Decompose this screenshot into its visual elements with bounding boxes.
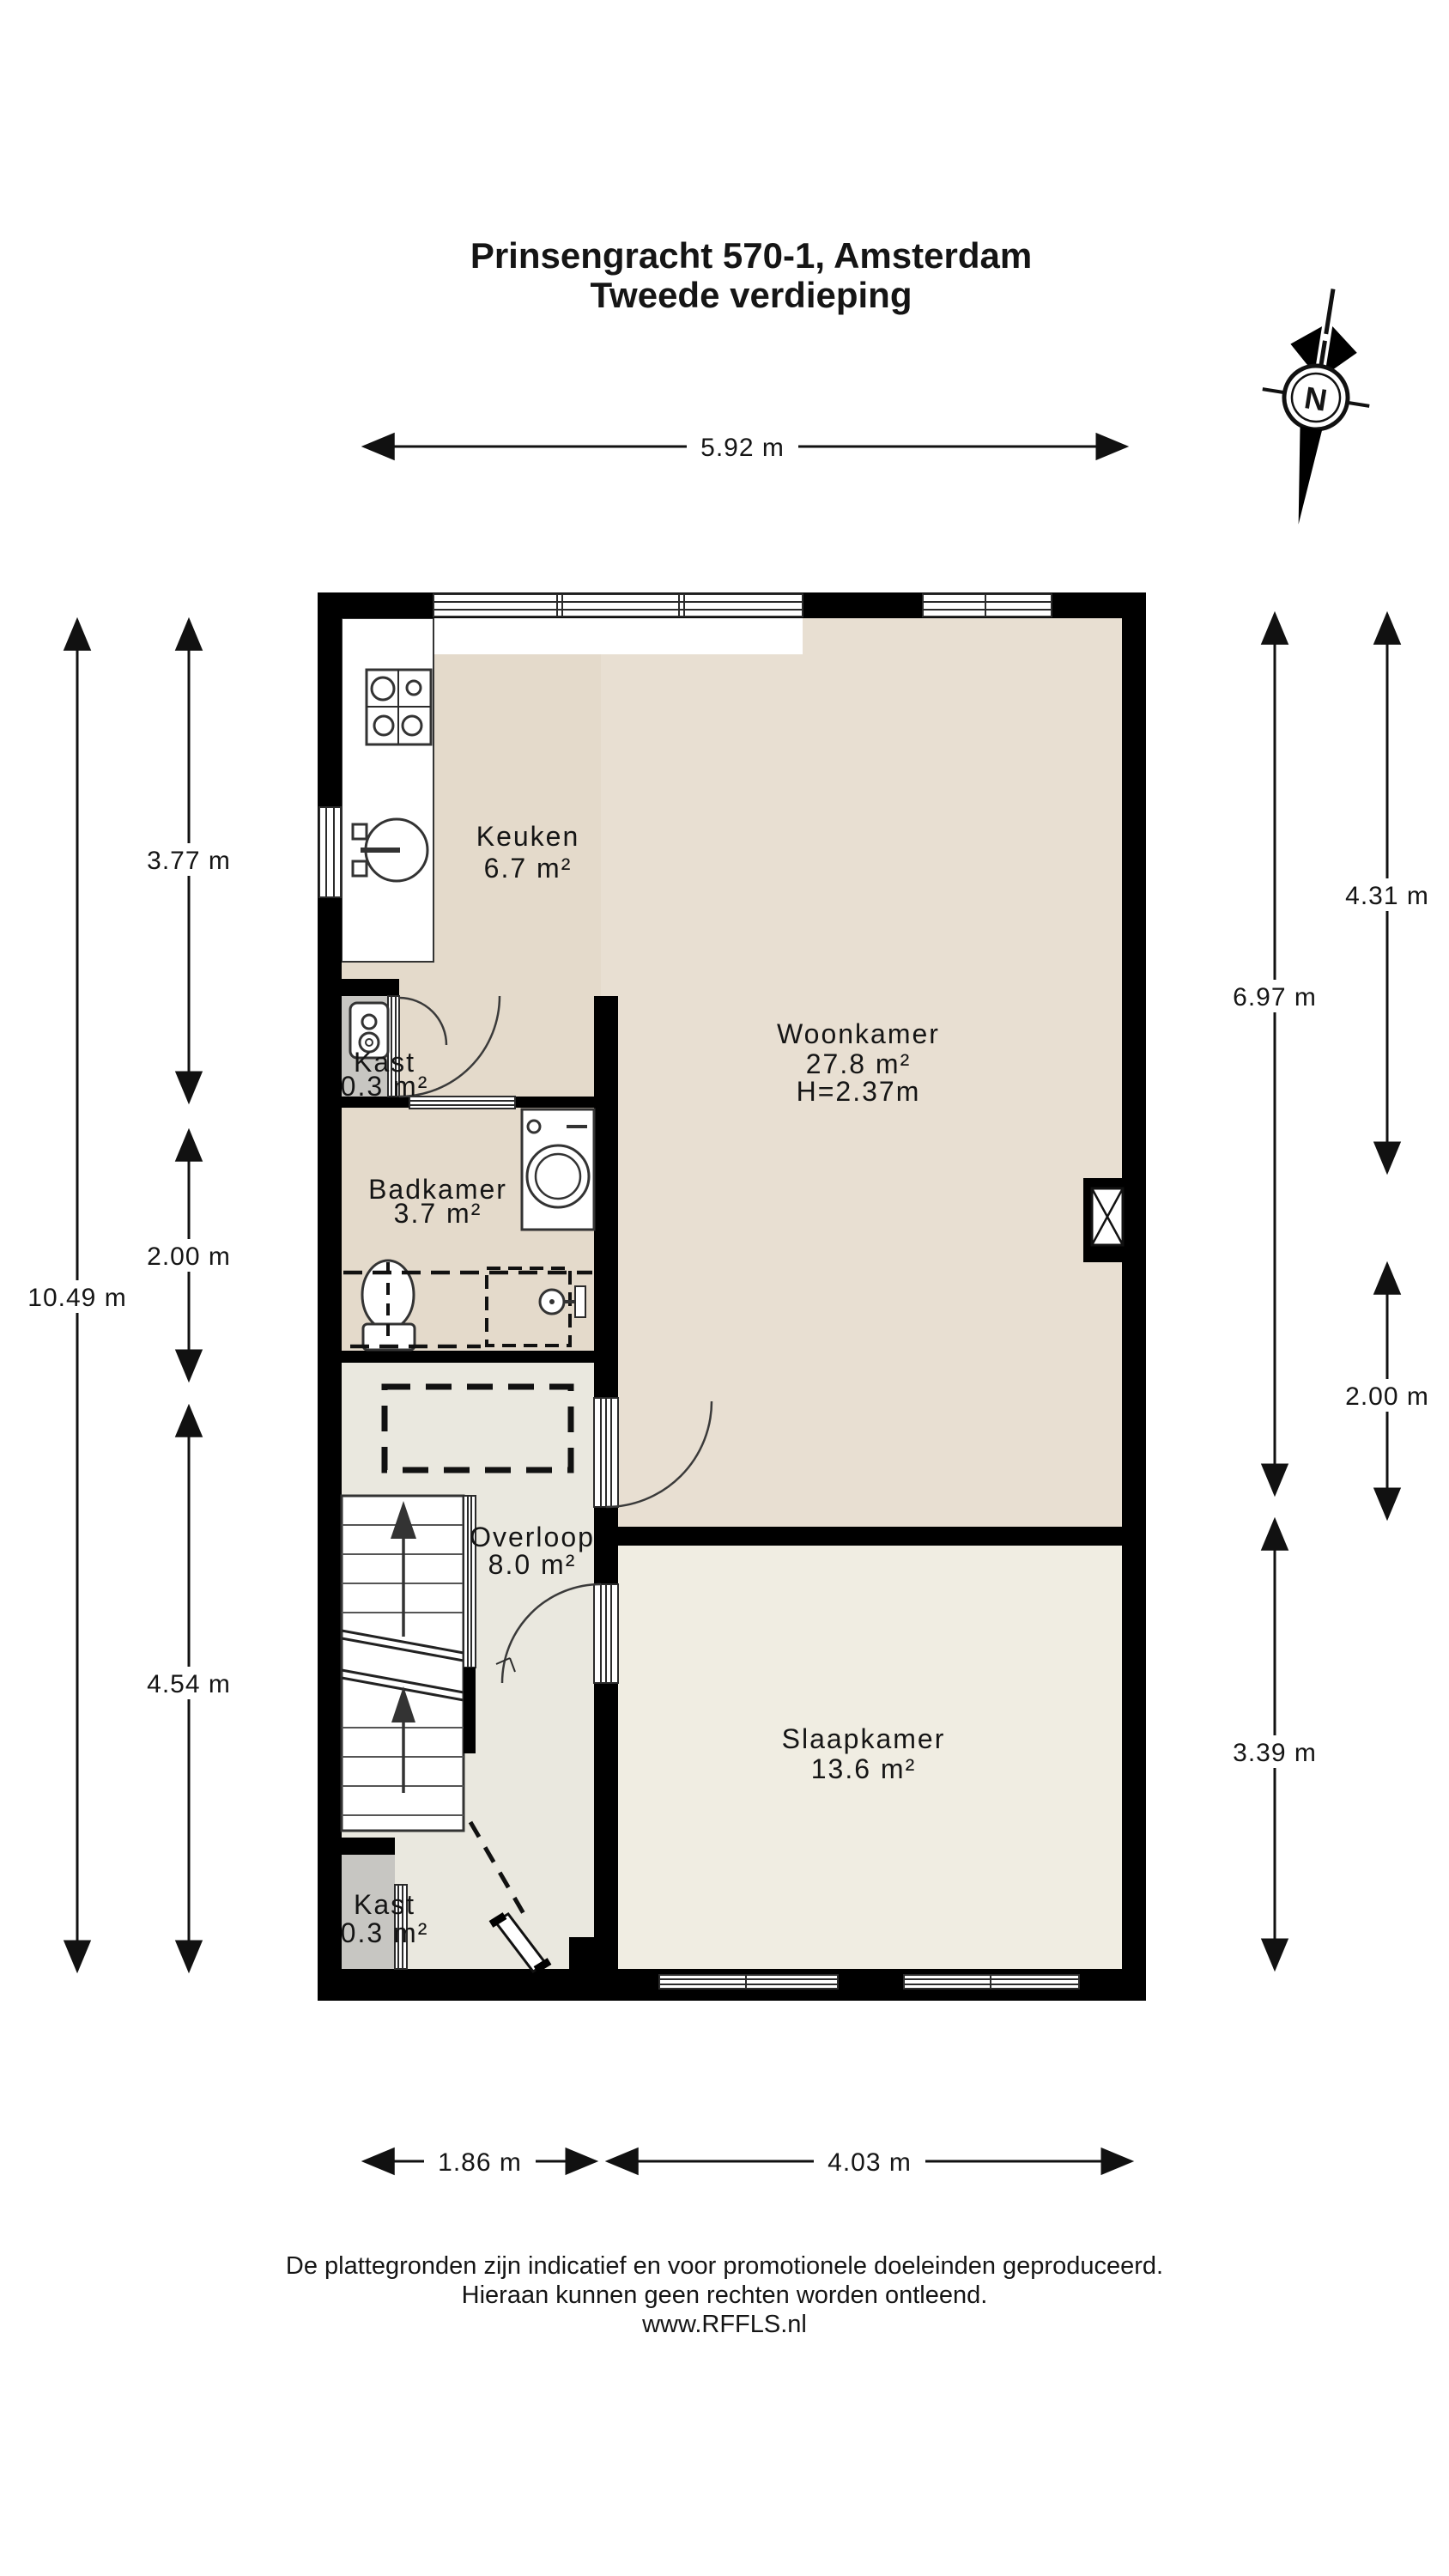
svg-text:3.77 m: 3.77 m <box>147 847 231 875</box>
page-title: Prinsengracht 570-1, Amsterdam <box>470 235 1032 276</box>
wall-left <box>318 592 342 2001</box>
keuken-area: 6.7 m² <box>484 853 573 884</box>
kast1-area: 0.3 m² <box>341 1071 429 1102</box>
dim-left-bottom: 4.54 m <box>133 1406 245 1971</box>
svg-text:3.39 m: 3.39 m <box>1233 1739 1317 1767</box>
floorplan-page: Prinsengracht 570-1, Amsterdam Tweede ve… <box>0 0 1449 2576</box>
kast2-area: 0.3 m² <box>341 1917 429 1948</box>
svg-text:1.86 m: 1.86 m <box>438 2148 522 2177</box>
window-top-small <box>923 594 1052 617</box>
dim-bottom-left: 1.86 m <box>364 2145 596 2178</box>
window-top-large <box>433 594 803 617</box>
disclaimer: De plattegronden zijn indicatief en voor… <box>286 2252 1163 2338</box>
svg-text:6.97 m: 6.97 m <box>1233 983 1317 1012</box>
dim-right-bedroom: 3.39 m <box>1219 1520 1331 1969</box>
window-bottom-left <box>659 1975 838 1989</box>
badkamer-area: 3.7 m² <box>394 1198 482 1229</box>
wall-kast1-top <box>318 979 399 996</box>
dim-right-living: 6.97 m <box>1219 614 1331 1494</box>
svg-text:4.54 m: 4.54 m <box>147 1670 231 1698</box>
woonkamer-label: Woonkamer <box>777 1018 940 1049</box>
slaapkamer-area: 13.6 m² <box>811 1753 916 1784</box>
woonkamer-area: 27.8 m² <box>806 1048 911 1079</box>
svg-text:2.00 m: 2.00 m <box>1345 1382 1429 1411</box>
window-sill-strip <box>433 618 803 654</box>
page-subtitle: Tweede verdieping <box>591 275 912 315</box>
wall-kast2-top <box>318 1838 395 1855</box>
svg-text:5.92 m: 5.92 m <box>700 434 785 462</box>
keuken-label: Keuken <box>476 821 580 852</box>
window-left-kitchen <box>319 807 341 897</box>
wall-woonkamer-slaapkamer <box>594 1527 1146 1546</box>
wall-badkamer-bottom <box>318 1351 594 1363</box>
overloop-area: 8.0 m² <box>488 1549 577 1580</box>
dim-right-mid: 2.00 m <box>1331 1264 1443 1518</box>
dim-bottom-right: 4.03 m <box>608 2145 1131 2178</box>
overloop-label: Overloop <box>470 1522 595 1552</box>
kitchen-sink-icon <box>353 819 427 881</box>
stove-icon <box>367 670 431 744</box>
shaft-icon <box>1092 1188 1123 1245</box>
dim-left-mid: 2.00 m <box>133 1131 245 1380</box>
svg-text:10.49 m: 10.49 m <box>27 1284 126 1312</box>
disclaimer-line-1: De plattegronden zijn indicatief en voor… <box>286 2252 1163 2280</box>
dim-right-top: 4.31 m <box>1331 614 1443 1172</box>
north-compass-icon: N <box>1242 281 1386 532</box>
washing-machine-icon <box>522 1109 594 1230</box>
slaapkamer-label: Slaapkamer <box>782 1723 946 1754</box>
kast2-label: Kast <box>354 1889 415 1920</box>
dim-left-total: 10.49 m <box>13 620 142 1971</box>
wall-badkamer-top-right <box>515 1097 601 1108</box>
woonkamer-height: H=2.37m <box>797 1076 921 1107</box>
wall-right <box>1122 592 1146 2001</box>
window-bottom-right <box>904 1975 1079 1989</box>
disclaimer-line-2: Hieraan kunnen geen rechten worden ontle… <box>462 2281 988 2309</box>
dim-width-total: 5.92 m <box>364 430 1126 463</box>
dim-left-top: 3.77 m <box>133 620 245 1102</box>
svg-text:2.00 m: 2.00 m <box>147 1242 231 1271</box>
svg-text:4.03 m: 4.03 m <box>828 2148 912 2177</box>
svg-text:4.31 m: 4.31 m <box>1345 882 1429 910</box>
wall-step-bottom <box>569 1937 601 1969</box>
website-url: www.RFFLS.nl <box>641 2311 807 2338</box>
